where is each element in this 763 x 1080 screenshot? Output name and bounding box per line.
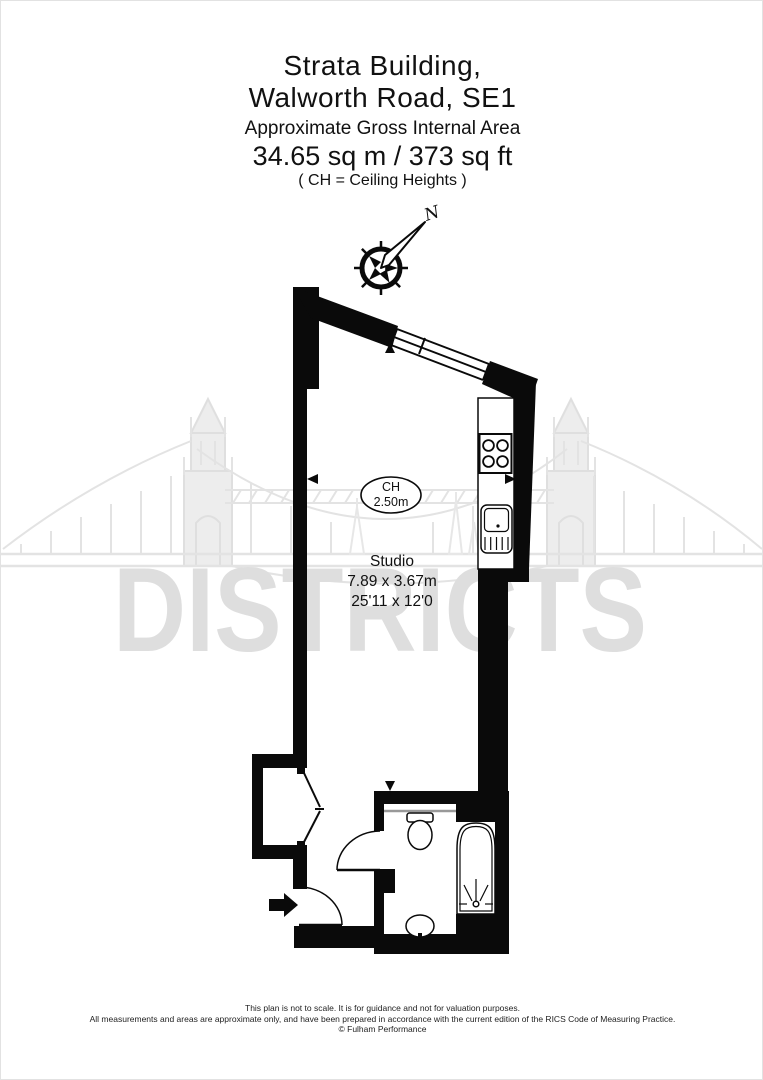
ceiling-note: ( CH = Ceiling Heights ): [1, 171, 763, 190]
closet-jamb-bottom: [297, 841, 305, 849]
wall-right-mid: [478, 582, 508, 803]
ceiling-height-value: 2.50m: [354, 495, 428, 510]
bridge-right-tower: [547, 399, 595, 566]
basin-icon: [406, 915, 434, 937]
wall-closet-left: [252, 754, 263, 859]
bathroom-door-icon: [337, 831, 380, 870]
dim-arrow-left-icon: [307, 474, 318, 484]
room-dimensions-imperial: 25'11 x 12'0: [292, 592, 492, 612]
disclaimer-line1: This plan is not to scale. It is for gui…: [1, 1003, 763, 1014]
hob-icon: [480, 434, 512, 473]
area-subtitle: Approximate Gross Internal Area: [1, 117, 763, 141]
compass-rose-icon: [354, 222, 425, 295]
disclaimer-copyright: © Fulham Performance: [1, 1024, 763, 1035]
title-block: Strata Building, Walworth Road, SE1 Appr…: [1, 50, 763, 190]
closet-jamb-top: [297, 766, 305, 774]
disclaimer-block: This plan is not to scale. It is for gui…: [1, 1003, 763, 1035]
window: [391, 329, 489, 380]
wall-left-low: [293, 859, 307, 889]
compass-needle-icon: [381, 222, 425, 268]
building-name: Strata Building,: [1, 50, 763, 82]
dim-arrow-down-icon: [385, 781, 395, 791]
floorplan-page: DISTRICTS: [0, 0, 763, 1080]
sink-icon: [481, 505, 512, 553]
area-value: 34.65 sq m / 373 sq ft: [1, 142, 763, 171]
bridge-left-tower: [184, 399, 232, 566]
wall-bathroom-left-upper: [374, 791, 384, 831]
wardrobe: [263, 766, 324, 849]
wall-kitchen-right: [514, 382, 536, 569]
wall-under-tub: [456, 914, 509, 954]
bathtub-icon: [457, 823, 495, 914]
building-address: Walworth Road, SE1: [1, 82, 763, 114]
entrance-arrow-icon: [269, 893, 298, 917]
wall-bottom-left: [294, 926, 379, 948]
ceiling-height-abbrev: CH: [354, 480, 428, 495]
entry-door-icon: [299, 887, 342, 925]
disclaimer-line2: All measurements and areas are approxima…: [1, 1014, 763, 1025]
room-name: Studio: [292, 552, 492, 572]
toilet-icon: [384, 811, 456, 850]
ceiling-height-label: CH 2.50m: [354, 480, 428, 510]
room-dimensions-metric: 7.89 x 3.67m: [292, 572, 492, 592]
studio-room-label: Studio 7.89 x 3.67m 25'11 x 12'0: [292, 552, 492, 612]
